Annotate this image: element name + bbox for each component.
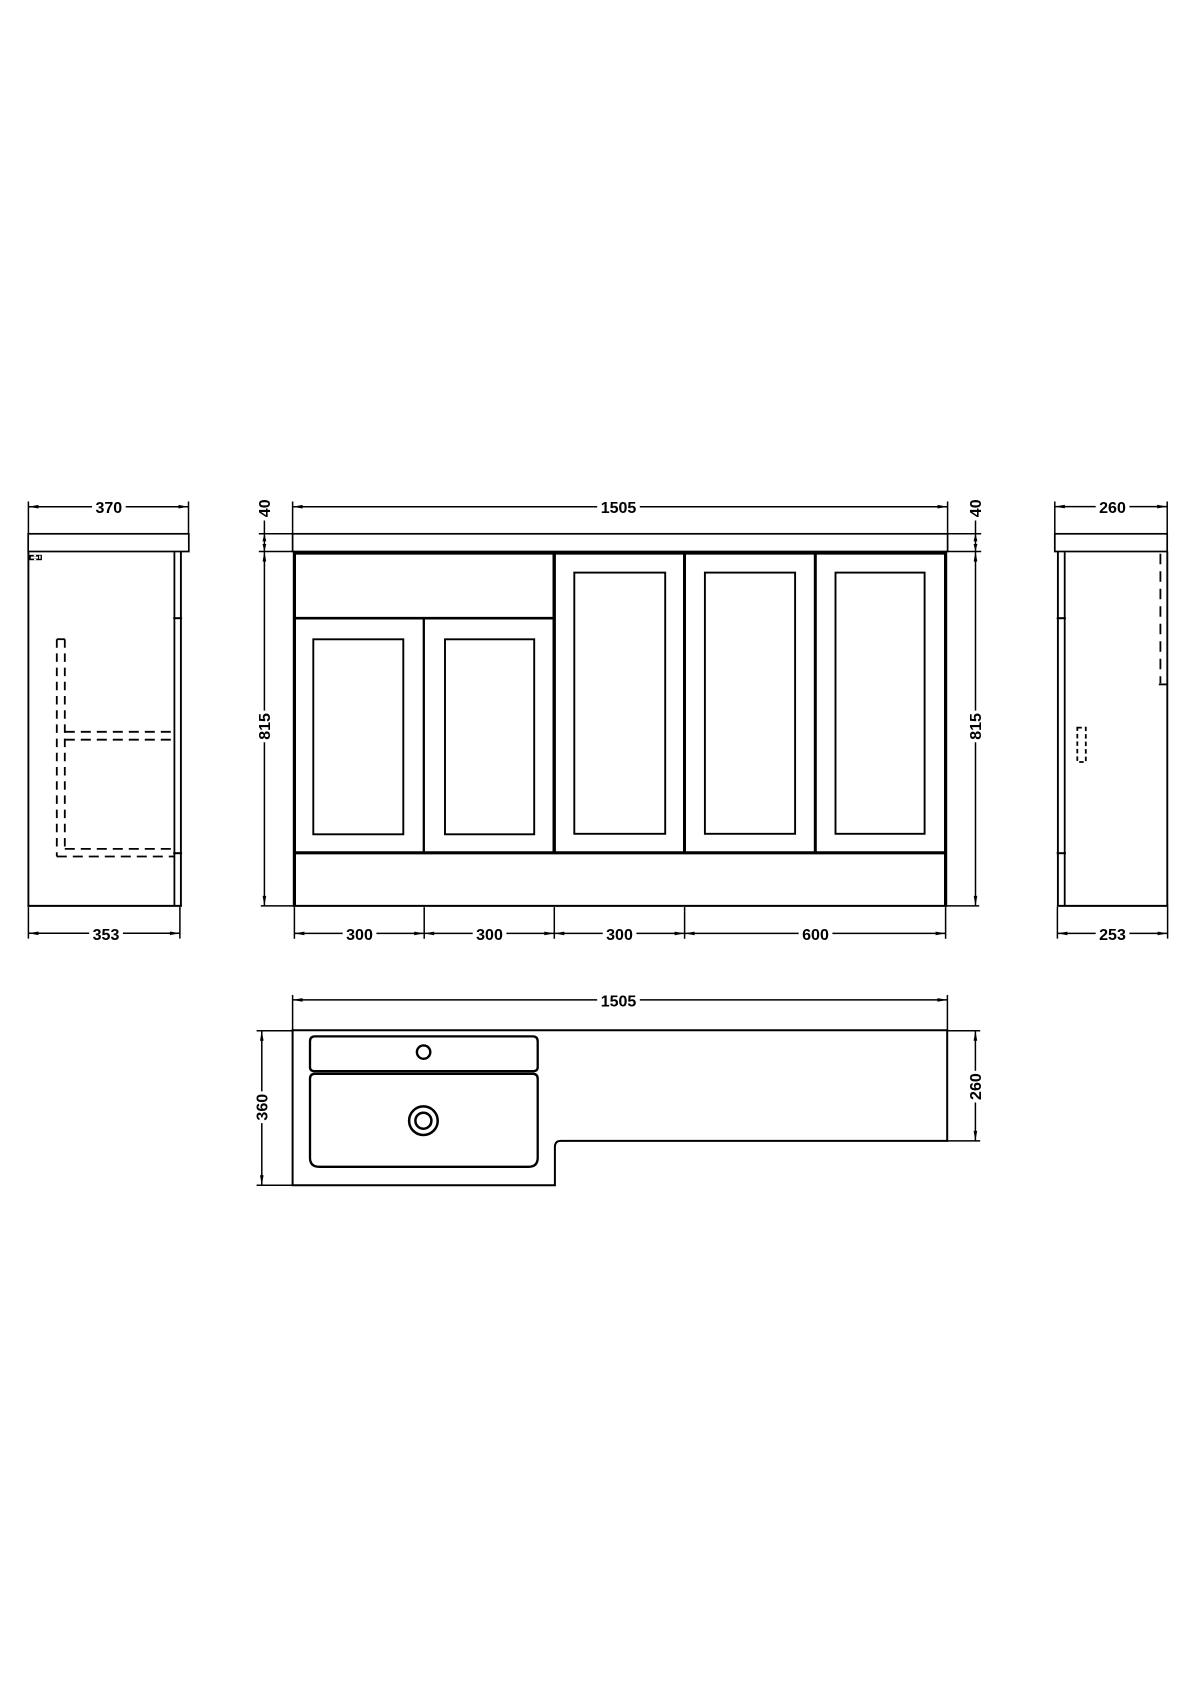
svg-text:600: 600 — [802, 927, 829, 944]
svg-text:1505: 1505 — [601, 500, 637, 517]
svg-text:370: 370 — [95, 500, 122, 517]
svg-text:253: 253 — [1099, 927, 1126, 944]
svg-text:40: 40 — [257, 499, 274, 517]
svg-text:40: 40 — [968, 499, 985, 517]
svg-text:1505: 1505 — [601, 993, 637, 1010]
svg-text:815: 815 — [257, 713, 274, 740]
svg-text:300: 300 — [606, 927, 633, 944]
svg-text:260: 260 — [1099, 500, 1126, 517]
svg-text:815: 815 — [968, 713, 985, 740]
svg-text:300: 300 — [346, 927, 373, 944]
svg-text:353: 353 — [93, 927, 120, 944]
svg-text:260: 260 — [968, 1073, 985, 1100]
svg-text:300: 300 — [476, 927, 503, 944]
svg-text:360: 360 — [254, 1094, 271, 1121]
